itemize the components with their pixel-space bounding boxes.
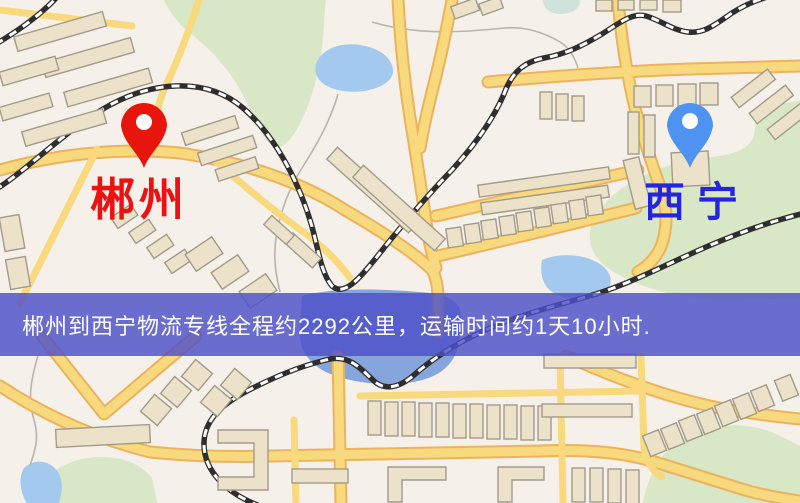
route-info-banner: 郴州到西宁物流专线全程约2292公里，运输时间约1天10小时. xyxy=(0,293,800,356)
origin-pin-hole xyxy=(136,114,152,130)
route-info-text: 郴州到西宁物流专线全程约2292公里，运输时间约1天10小时. xyxy=(22,309,651,341)
destination-pin-hole xyxy=(682,113,698,129)
map-canvas[interactable] xyxy=(0,0,800,503)
origin-city-label: 郴州 xyxy=(90,177,188,222)
map-viewport[interactable]: 郴州 西宁 郴州到西宁物流专线全程约2292公里，运输时间约1天10小时. xyxy=(0,0,800,503)
destination-city-label: 西宁 xyxy=(644,182,750,223)
